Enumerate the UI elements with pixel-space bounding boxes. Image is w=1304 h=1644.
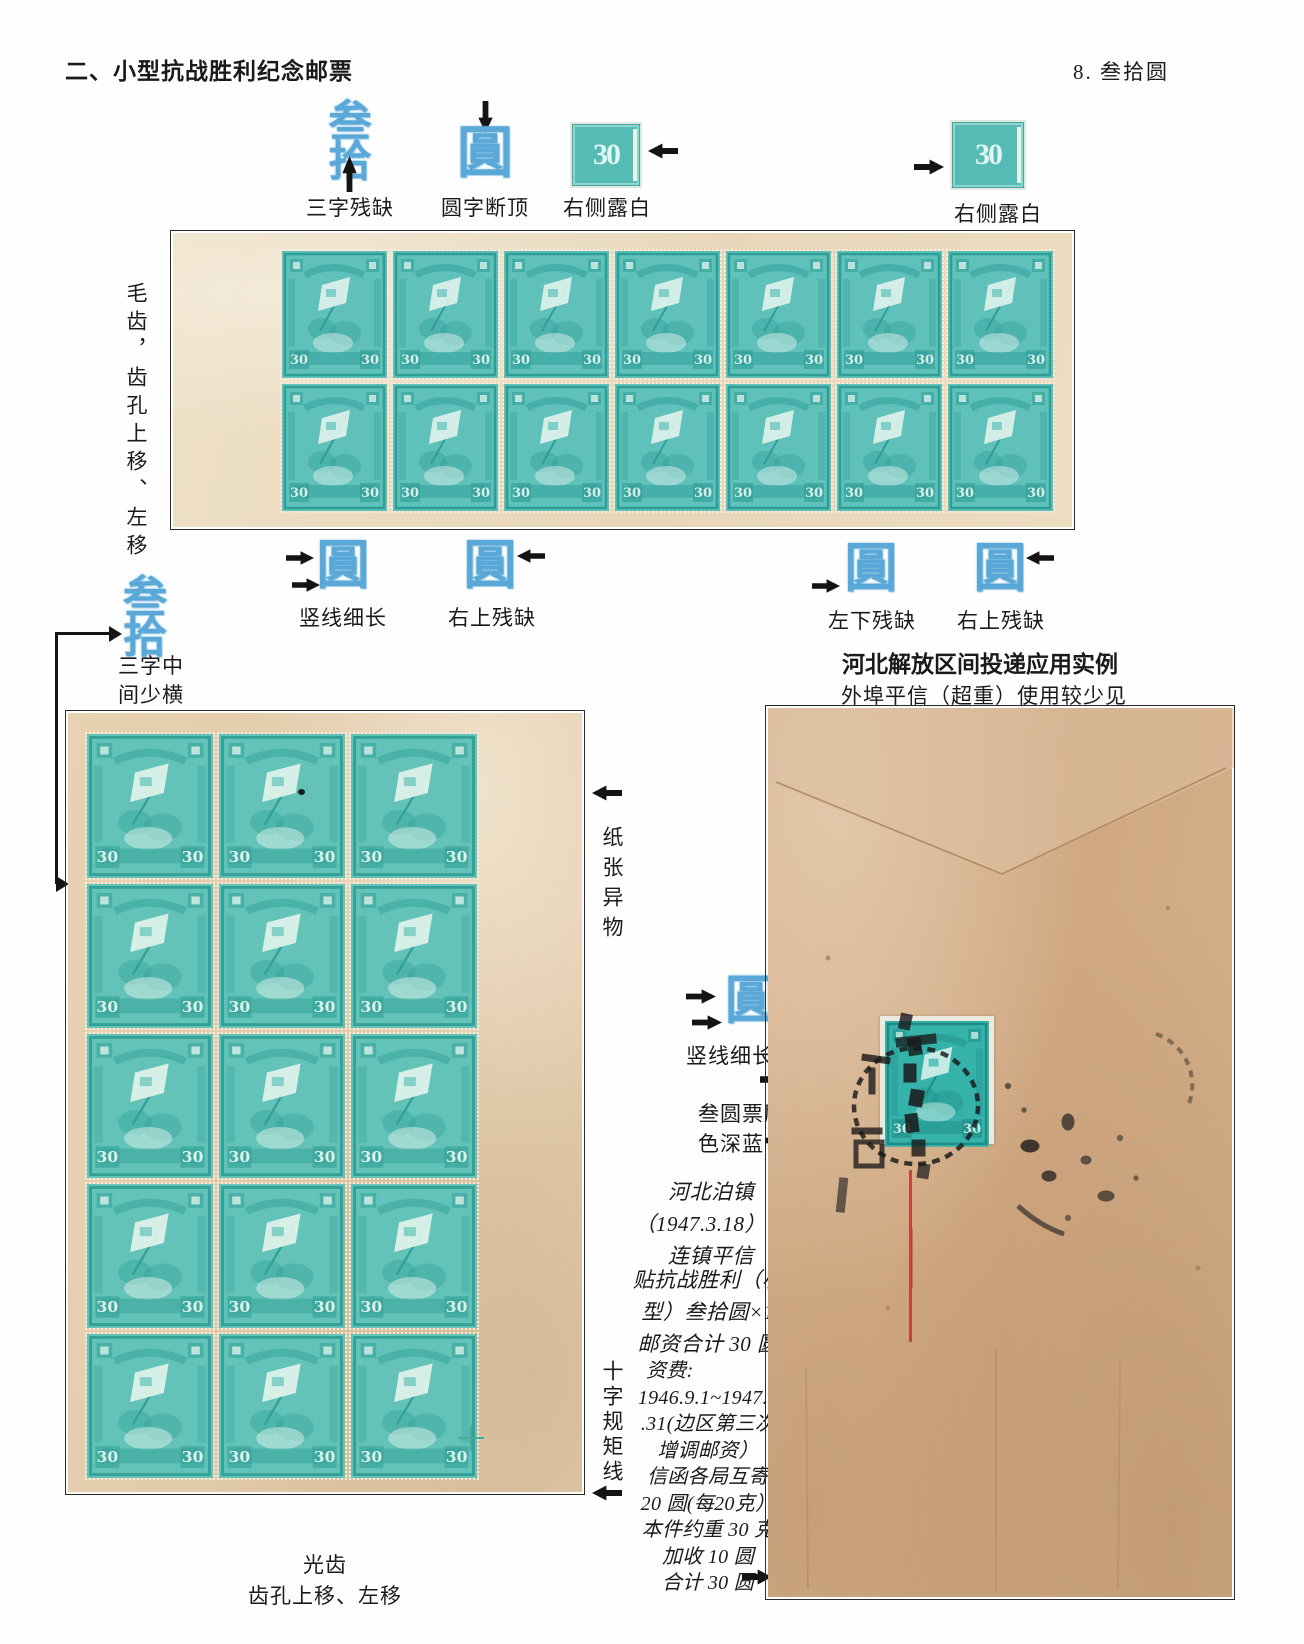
svg-text:30: 30 [361, 1299, 383, 1316]
variety-glyph-yuan: 圓 [315, 540, 371, 593]
variety-glyph-yuan: 圓 [972, 543, 1028, 596]
stamp: 3030 [945, 381, 1056, 514]
variety-caption: 右侧露白 [552, 192, 662, 222]
callout-connector-line [55, 632, 58, 884]
variety-caption: 左下残缺 [812, 605, 932, 635]
stamp: 3030 [216, 1181, 348, 1331]
svg-text:30: 30 [845, 353, 863, 368]
svg-text:30: 30 [472, 353, 490, 368]
stamp: 3030 [348, 1181, 480, 1331]
arrow-right-icon [914, 158, 944, 176]
svg-text:30: 30 [314, 849, 336, 866]
arrow-head-right [109, 626, 122, 642]
variety-glyph-yuan: 圓 [462, 540, 518, 593]
cover-photo: 3030 [765, 705, 1235, 1600]
stamp-detail-image: 30 [570, 122, 642, 188]
stamp: 3030 [834, 381, 945, 514]
svg-text:30: 30 [956, 486, 974, 501]
svg-text:30: 30 [694, 353, 712, 368]
stamp: 3030 [501, 381, 612, 514]
catalog-page: 二、小型抗战胜利纪念邮票 8. 叁拾圆 叁 拾 三字残缺 圓 圆字断顶 30 右… [0, 0, 1304, 1644]
registration-cross [470, 1425, 472, 1451]
stamp: 3030 [390, 248, 501, 381]
svg-text:30: 30 [182, 1449, 204, 1466]
stamp: 3030 [723, 381, 834, 514]
svg-text:30: 30 [182, 1299, 204, 1316]
variety-caption: 右上残缺 [941, 605, 1061, 635]
stamp: 3030 [279, 381, 390, 514]
stamp: 3030 [348, 1031, 480, 1181]
paper-inclusion-dot [298, 789, 305, 795]
photo-paper: 3030303030303030303030303030303030303030… [173, 233, 1072, 527]
svg-text:30: 30 [314, 1149, 336, 1166]
page-title: 二、小型抗战胜利纪念邮票 [65, 52, 353, 86]
svg-text:30: 30 [512, 353, 530, 368]
arrow-left-icon [517, 548, 545, 564]
arrow-right-icon [686, 988, 716, 1005]
svg-text:30: 30 [97, 1299, 119, 1316]
svg-text:30: 30 [916, 353, 934, 368]
variety-glyph-sanshi: 叁 拾 [103, 578, 187, 659]
svg-text:30: 30 [623, 486, 641, 501]
svg-text:30: 30 [97, 849, 119, 866]
page-number-title: 8. 叁拾圆 [1073, 56, 1169, 86]
variety-caption: 圆字断顶 [432, 192, 538, 222]
stamp: 3030 [612, 381, 723, 514]
white-margin [633, 129, 637, 181]
stamp-block-photo-bottom: 3030303030303030303030303030303030303030… [65, 710, 585, 1495]
svg-text:30: 30 [805, 486, 823, 501]
svg-text:30: 30 [446, 849, 468, 866]
arrow-right-icon [286, 550, 314, 566]
svg-text:30: 30 [446, 999, 468, 1016]
stamp: 3030 [216, 881, 348, 1031]
color-note: 色深蓝 [698, 1128, 764, 1158]
svg-text:30: 30 [583, 486, 601, 501]
stamp-block-photo-top: 3030303030303030303030303030303030303030… [170, 230, 1075, 530]
variety-caption: 竖线细长 [283, 602, 403, 632]
svg-text:30: 30 [472, 486, 490, 501]
svg-text:30: 30 [845, 486, 863, 501]
arrow-right-icon [812, 578, 840, 594]
stamp: 3030 [501, 248, 612, 381]
variety-caption: 三字中 间少横 [96, 652, 206, 710]
svg-text:30: 30 [446, 1449, 468, 1466]
stamp-grid: 3030303030303030303030303030303030303030… [84, 731, 480, 1481]
svg-text:30: 30 [361, 486, 379, 501]
svg-text:30: 30 [97, 999, 119, 1016]
stamp: 3030 [216, 731, 348, 881]
svg-text:30: 30 [583, 353, 601, 368]
envelope-back: 3030 [768, 708, 1232, 1597]
stamp: 3030 [279, 248, 390, 381]
postmark-art [768, 708, 1234, 1599]
svg-text:30: 30 [361, 999, 383, 1016]
svg-text:30: 30 [361, 849, 383, 866]
svg-text:30: 30 [182, 1149, 204, 1166]
stamp: 3030 [723, 248, 834, 381]
variety-glyph-yuan: 圓 [843, 543, 899, 596]
callout-connector-line [55, 632, 111, 635]
stamp: 3030 [84, 1181, 216, 1331]
svg-text:30: 30 [446, 1149, 468, 1166]
svg-text:30: 30 [361, 1149, 383, 1166]
stamp: 3030 [834, 248, 945, 381]
stamp: 3030 [216, 1331, 348, 1481]
arrow-left-icon [1026, 550, 1054, 566]
variety-caption: 右上残缺 [432, 602, 552, 632]
stamp: 3030 [216, 1031, 348, 1181]
stamp-grid: 3030303030303030303030303030303030303030… [279, 248, 1056, 514]
stamp-detail-image: 30 [950, 120, 1026, 190]
svg-text:30: 30 [734, 353, 752, 368]
svg-text:30: 30 [1027, 486, 1045, 501]
svg-text:30: 30 [1027, 353, 1045, 368]
svg-text:30: 30 [956, 353, 974, 368]
svg-text:30: 30 [446, 1299, 468, 1316]
section-title: 河北解放区间投递应用实例 [800, 645, 1160, 679]
svg-text:30: 30 [97, 1449, 119, 1466]
svg-text:30: 30 [916, 486, 934, 501]
svg-text:30: 30 [401, 486, 419, 501]
photo-paper: 3030303030303030303030303030303030303030… [68, 713, 582, 1492]
stamp: 3030 [348, 1331, 480, 1481]
svg-text:30: 30 [314, 999, 336, 1016]
stamp: 3030 [612, 248, 723, 381]
svg-text:30: 30 [229, 1449, 251, 1466]
stamp: 3030 [945, 248, 1056, 381]
variety-glyph-yuan: 圓 [435, 126, 535, 182]
svg-text:30: 30 [734, 486, 752, 501]
block-side-label: 纸张异物 [597, 826, 627, 946]
svg-text:30: 30 [805, 353, 823, 368]
svg-text:30: 30 [182, 849, 204, 866]
variety-caption: 右侧露白 [943, 198, 1053, 228]
svg-text:30: 30 [229, 849, 251, 866]
svg-text:30: 30 [182, 999, 204, 1016]
stamp: 3030 [348, 881, 480, 1031]
svg-text:30: 30 [97, 1149, 119, 1166]
svg-text:30: 30 [314, 1299, 336, 1316]
arrow-left-icon [648, 142, 678, 160]
arrow-left-icon [592, 784, 622, 802]
svg-text:30: 30 [361, 353, 379, 368]
white-margin [1017, 127, 1021, 183]
stamp: 3030 [84, 881, 216, 1031]
svg-text:30: 30 [290, 486, 308, 501]
svg-text:30: 30 [229, 1299, 251, 1316]
variety-caption: 三字残缺 [288, 192, 412, 222]
svg-text:30: 30 [361, 1449, 383, 1466]
svg-text:30: 30 [623, 353, 641, 368]
stamp: 3030 [84, 731, 216, 881]
block-side-label: 毛齿，齿孔上移、左移 [121, 282, 151, 562]
svg-text:30: 30 [401, 353, 419, 368]
svg-text:30: 30 [694, 486, 712, 501]
stamp: 3030 [84, 1031, 216, 1181]
svg-text:30: 30 [290, 353, 308, 368]
stamp: 3030 [348, 731, 480, 881]
svg-text:30: 30 [229, 1149, 251, 1166]
svg-text:30: 30 [512, 486, 530, 501]
stamp: 3030 [390, 381, 501, 514]
block-caption: 光齿 齿孔上移、左移 [175, 1550, 475, 1612]
svg-text:30: 30 [314, 1449, 336, 1466]
svg-text:30: 30 [229, 999, 251, 1016]
stamp: 3030 [84, 1331, 216, 1481]
